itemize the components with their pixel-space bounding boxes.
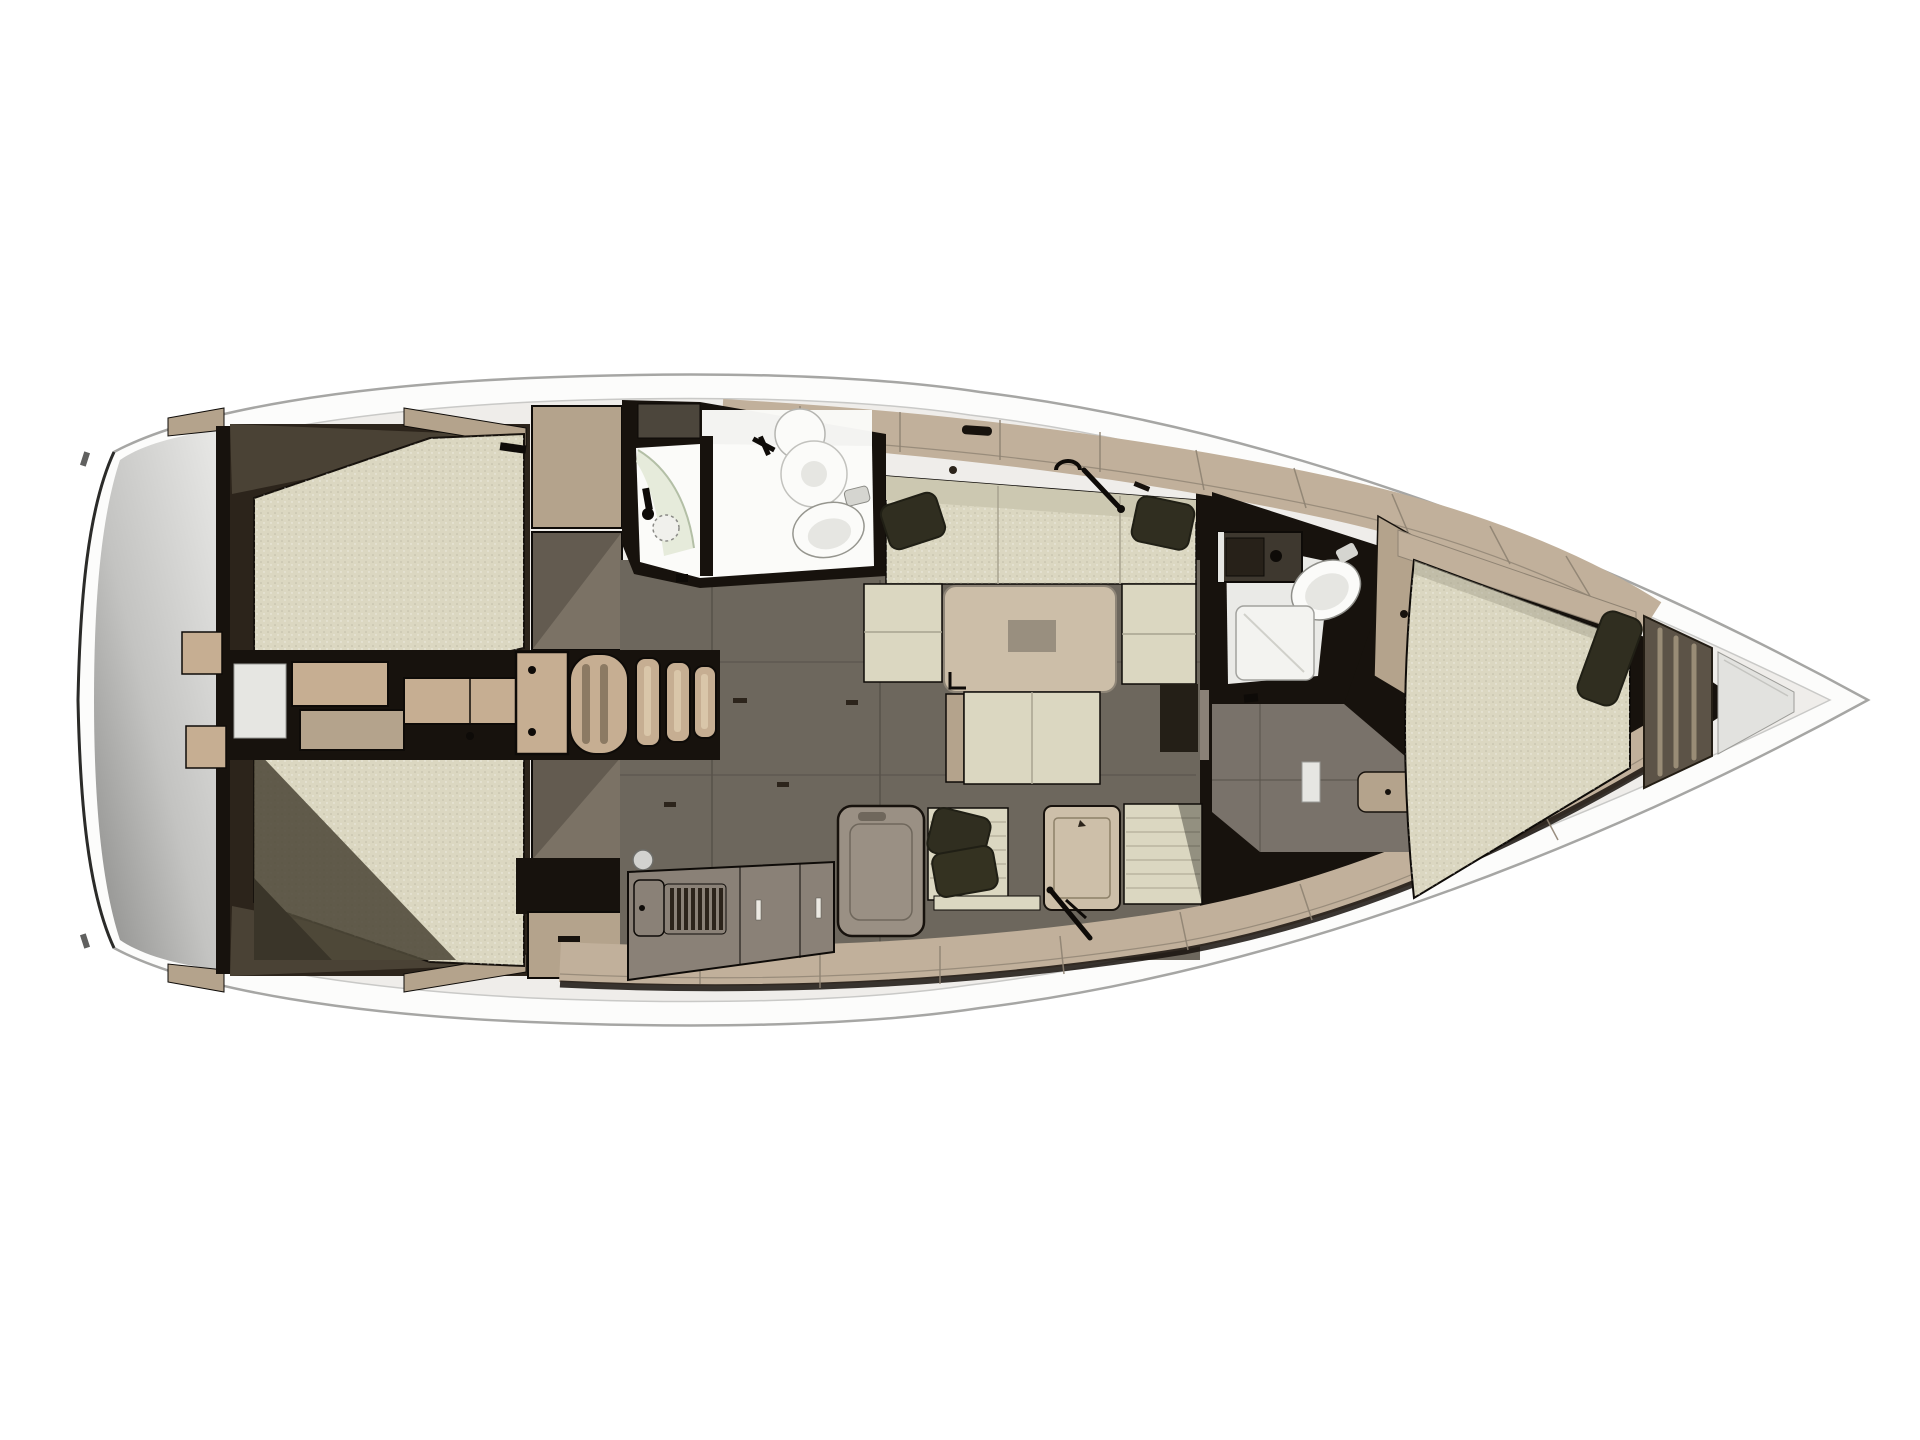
nav-seat-front [934, 896, 1040, 910]
head-door-hinge [676, 574, 688, 582]
swim-platform [94, 408, 230, 992]
wardrobe [532, 406, 622, 528]
transom-door-hatch [234, 664, 286, 738]
transom-deck [94, 430, 224, 970]
washbasin-drain [801, 461, 827, 487]
fridge-door [838, 806, 924, 936]
aft-cabin-starboard [186, 726, 622, 992]
tread-stripe [644, 666, 651, 736]
head-door-hinge [1244, 693, 1259, 702]
floor-hatch [1302, 762, 1320, 802]
deck-dot [949, 466, 957, 474]
landing-dot [528, 728, 536, 736]
vanity-sink [1226, 538, 1264, 576]
nav-pillow-bottom [931, 844, 1000, 898]
aft-head [622, 400, 886, 588]
bulkhead-door [1199, 690, 1209, 760]
sole-mark [777, 782, 789, 787]
steps-landing [516, 652, 568, 754]
settee-end-locker [1160, 684, 1198, 752]
head-divider [700, 436, 713, 576]
locker-handle [639, 905, 645, 911]
sole-mark [846, 700, 858, 705]
nightstand [186, 726, 226, 768]
bench-trim [946, 694, 964, 782]
wardrobe-emblem [558, 936, 580, 942]
fridge-handle [858, 812, 886, 821]
galley-handle [756, 900, 761, 920]
engine-hatch-c [404, 678, 516, 724]
vanity-faucet [1270, 550, 1282, 562]
head-shelf [638, 404, 700, 438]
tread-stripe [701, 674, 708, 729]
rod-end [1047, 887, 1054, 894]
landing-dot [528, 666, 536, 674]
shelf-latch [1385, 789, 1391, 795]
engine-hatch-b [300, 710, 404, 750]
sole-mark [664, 802, 676, 807]
step-tread-1 [570, 654, 628, 754]
nightstand [182, 632, 222, 674]
rod-end [1117, 505, 1125, 513]
engine-hatch-a [292, 662, 388, 706]
table-inset [1008, 620, 1056, 652]
galley-sink [633, 850, 653, 870]
sole-mark [733, 698, 747, 703]
floor-plan-drawing [0, 0, 1920, 1440]
companionway [516, 652, 716, 754]
stern-bulkhead [216, 426, 230, 974]
shower-mixer [642, 508, 654, 520]
aft-cabin-port [182, 406, 622, 674]
vanity-edge [1218, 532, 1224, 582]
tread-slot [600, 664, 608, 744]
shower-drain [653, 515, 679, 541]
settee-end-seat-left [864, 584, 942, 682]
wardrobe-gap [516, 858, 622, 914]
galley-locker-door [634, 880, 664, 936]
wall-latch [1400, 610, 1408, 618]
galley-handle [816, 898, 821, 918]
tread-stripe [674, 670, 681, 732]
tread-slot [582, 664, 590, 744]
yacht-floor-plan-canvas [0, 0, 1920, 1440]
hatch-dot [466, 732, 474, 740]
